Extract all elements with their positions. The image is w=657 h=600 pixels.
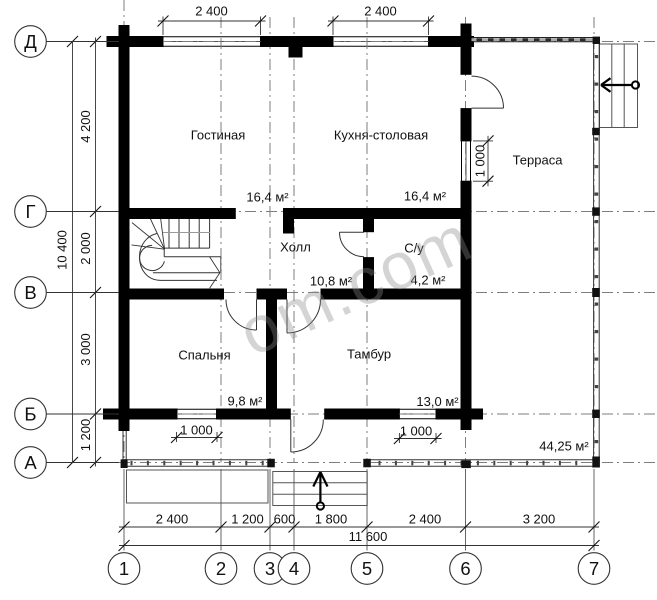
svg-text:1 800: 1 800 <box>315 512 348 527</box>
svg-text:Гостиная: Гостиная <box>191 128 246 143</box>
svg-text:11 600: 11 600 <box>349 529 388 544</box>
svg-text:3 200: 3 200 <box>523 512 556 527</box>
svg-text:16,4 м²: 16,4 м² <box>404 189 447 204</box>
svg-text:44,25 м²: 44,25 м² <box>539 439 589 454</box>
svg-text:2 400: 2 400 <box>409 512 442 527</box>
svg-text:1 000: 1 000 <box>400 424 433 439</box>
svg-text:1: 1 <box>119 558 129 579</box>
svg-text:2: 2 <box>216 558 226 579</box>
svg-text:6: 6 <box>460 558 470 579</box>
svg-text:2 000: 2 000 <box>78 232 93 265</box>
svg-text:Тамбур: Тамбур <box>347 347 391 362</box>
svg-text:Спальня: Спальня <box>178 348 230 363</box>
svg-text:1 200: 1 200 <box>78 419 93 452</box>
svg-text:3: 3 <box>265 558 275 579</box>
svg-text:4: 4 <box>289 558 299 579</box>
svg-text:Кухня-столовая: Кухня-столовая <box>334 128 428 143</box>
svg-text:7: 7 <box>589 558 599 579</box>
svg-text:16,4 м²: 16,4 м² <box>246 190 289 205</box>
svg-text:2 400: 2 400 <box>364 4 397 19</box>
svg-text:5: 5 <box>362 558 372 579</box>
svg-text:Г: Г <box>25 201 35 222</box>
svg-text:10 400: 10 400 <box>55 230 70 270</box>
svg-text:А: А <box>24 452 37 473</box>
svg-text:Холл: Холл <box>280 240 311 255</box>
svg-text:2 400: 2 400 <box>195 4 228 19</box>
svg-text:1 200: 1 200 <box>231 512 264 527</box>
svg-text:Д: Д <box>24 31 37 52</box>
svg-text:9,8 м²: 9,8 м² <box>228 394 264 409</box>
svg-text:600: 600 <box>274 512 296 527</box>
svg-text:2 400: 2 400 <box>156 512 189 527</box>
svg-text:4 200: 4 200 <box>78 110 93 143</box>
svg-text:1 000: 1 000 <box>473 145 488 178</box>
svg-text:Терраса: Терраса <box>513 153 564 168</box>
svg-text:3 000: 3 000 <box>78 333 93 366</box>
svg-text:В: В <box>24 282 36 303</box>
svg-text:13,0 м²: 13,0 м² <box>416 394 459 409</box>
svg-text:1 000: 1 000 <box>180 423 213 438</box>
svg-text:Б: Б <box>24 404 36 425</box>
